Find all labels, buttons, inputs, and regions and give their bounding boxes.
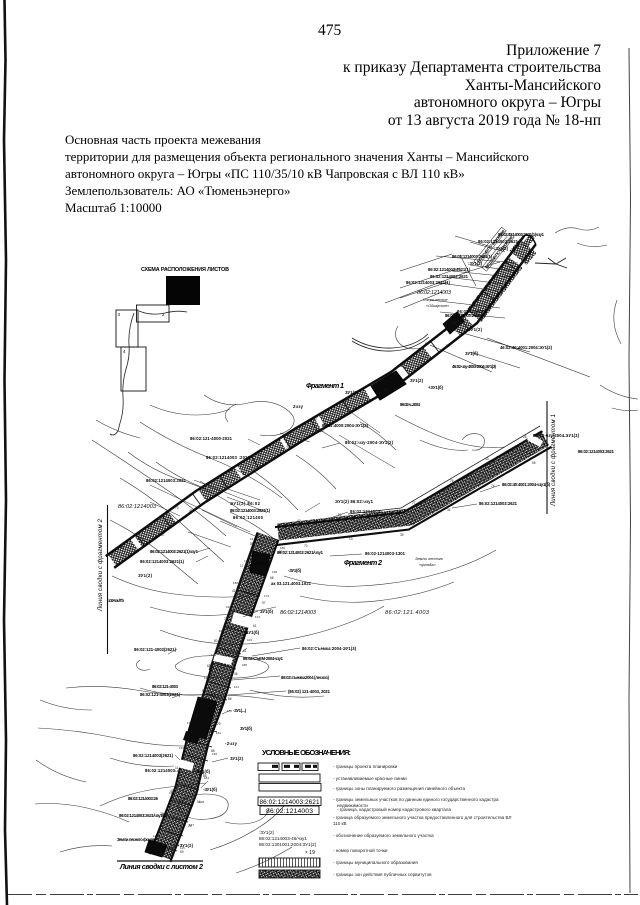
svg-text:ЗУ1(б): ЗУ1(б): [260, 609, 274, 614]
svg-text:СХЕМА РАСПОЛОЖЕНИЯ ЛИСТОВ: СХЕМА РАСПОЛОЖЕНИЯ ЛИСТОВ: [141, 267, 229, 273]
svg-text:46:02:40:4001:2004:ЭУ1(2): 46:02:40:4001:2004:ЭУ1(2): [500, 345, 553, 350]
svg-text:86:02:1214003 :2021: 86:02:1214003 :2021: [206, 455, 251, 460]
svg-text:3: 3: [118, 312, 121, 317]
svg-text:-ЗУ1(б): -ЗУ1(б): [203, 787, 218, 792]
svg-text:95: 95: [128, 553, 132, 557]
svg-text:86:02:121-4000-2021: 86:02:121-4000-2021: [190, 436, 233, 441]
svg-text:65: 65: [207, 664, 211, 668]
svg-text:«Ойкарское»: «Ойкарское»: [426, 304, 449, 308]
svg-text:18: 18: [202, 486, 206, 490]
svg-text:«фонда»: «фонда»: [419, 562, 436, 567]
svg-text:38: 38: [345, 398, 349, 402]
svg-text:43: 43: [297, 519, 301, 523]
svg-text:ЗУ1(б): ЗУ1(б): [240, 726, 253, 731]
svg-text:56: 56: [120, 546, 124, 550]
svg-text:17: 17: [240, 564, 244, 568]
svg-text:50: 50: [148, 525, 152, 529]
svg-text:21: 21: [255, 467, 259, 471]
svg-text:15: 15: [384, 388, 388, 392]
svg-text:38: 38: [399, 364, 403, 368]
svg-text:97: 97: [262, 601, 266, 605]
svg-text:25: 25: [446, 344, 450, 348]
svg-text:61: 61: [253, 624, 257, 628]
svg-text:- устанавливаемые красные лини: - устанавливаемые красные линии: [333, 776, 407, 781]
svg-text:28: 28: [523, 435, 527, 439]
svg-text:134: 134: [179, 746, 184, 750]
svg-text:77: 77: [412, 501, 416, 505]
svg-text:172: 172: [227, 709, 232, 713]
svg-text:× 19: × 19: [305, 850, 315, 856]
svg-text:160: 160: [219, 629, 224, 633]
svg-text:ЗУ1(2): ЗУ1(2): [230, 756, 244, 761]
svg-text:86:02:чзу-2004-ЭУ1(2): 86:02:чзу-2004-ЭУ1(2): [345, 440, 394, 445]
svg-text:86:02:40:4001:2004-чзу1(б): 86:02:40:4001:2004-чзу1(б): [502, 482, 551, 487]
svg-text:80: 80: [214, 639, 218, 643]
svg-text:ЗУ1(б): ЗУ1(б): [465, 351, 479, 356]
svg-text:Земли лесного: Земли лесного: [415, 556, 444, 561]
svg-text:ЗУ1(2): ЗУ1(2): [468, 327, 483, 332]
svg-text:58: 58: [194, 714, 198, 718]
svg-text:68: 68: [270, 576, 274, 580]
svg-text:110 кВ: 110 кВ: [333, 821, 347, 826]
svg-text:86:02:1214003(2621): 86:02:1214003(2621): [133, 753, 174, 758]
svg-text:86:02:1214003: 86:02:1214003: [417, 290, 452, 296]
svg-text:55: 55: [250, 542, 254, 546]
svg-text:147: 147: [250, 537, 255, 541]
svg-text:93: 93: [515, 246, 519, 250]
svg-text:ЗУ1(2): ЗУ1(2): [410, 378, 424, 383]
svg-text:ЗУ1(2): ЗУ1(2): [138, 573, 153, 578]
svg-text::ЗУ1(2): :ЗУ1(2): [259, 830, 275, 835]
svg-text:138: 138: [272, 570, 277, 574]
svg-text:86:02:4000:2004-ЭУ1(2): 86:02:4000:2004-ЭУ1(2): [322, 423, 369, 428]
svg-text:Линия сводки с фрагментом 2: Линия сводки с фрагментом 2: [98, 518, 104, 612]
svg-text:174: 174: [244, 559, 249, 563]
svg-text:69: 69: [180, 850, 184, 854]
svg-text:86:02:СЪЕМ-2004-чзу1: 86:02:СЪЕМ-2004-чзу1: [243, 656, 284, 661]
svg-text:86:02:1214003:2621(1): 86:02:1214003:2621(1): [230, 508, 271, 513]
svg-text:34: 34: [447, 508, 451, 512]
svg-text:86: 86: [228, 697, 232, 701]
svg-text:149: 149: [175, 769, 180, 773]
svg-text:32: 32: [185, 739, 189, 743]
svg-text:Фрагмент 1: Фрагмент 1: [306, 381, 344, 390]
svg-text:86:02:121-4003(2021): 86:02:121-4003(2021): [140, 692, 181, 697]
svg-text:86:02:121-4003: 86:02:121-4003: [152, 684, 179, 689]
svg-text:86:02:1214003:2621/чзу1: 86:02:1214003:2621/чзу1: [277, 550, 324, 555]
svg-text:50: 50: [320, 429, 324, 433]
svg-text:86:02:1214003:2621: 86:02:1214003:2621: [578, 449, 615, 454]
svg-text:86:02:Съемка:2004-ЭУ1(3): 86:02:Съемка:2004-ЭУ1(3): [302, 646, 357, 651]
svg-text:17: 17: [374, 382, 378, 386]
svg-text:-ЗУ1(б): -ЗУ1(б): [288, 568, 302, 573]
svg-text:- границы зоны планируемого ра: - границы зоны планируемого размещения л…: [333, 785, 466, 791]
svg-text:166: 166: [204, 676, 209, 680]
svg-text:86:02:1214003:2021: 86:02:1214003:2021: [146, 478, 187, 483]
svg-text:53: 53: [417, 365, 421, 369]
svg-text:зЭУчзч/Тb: зЭУчзч/Тb: [108, 598, 124, 603]
svg-text:УСЛОВНЫЕ ОБОЗНАЧЕНИЯ:: УСЛОВНЫЕ ОБОЗНАЧЕНИЯ:: [262, 748, 351, 757]
svg-text:129: 129: [211, 653, 216, 657]
svg-text:55: 55: [532, 461, 536, 465]
svg-text:- границы муниципального образ: - границы муниципального образования: [333, 860, 418, 865]
svg-text:4: 4: [123, 349, 126, 354]
svg-text:29: 29: [217, 722, 221, 726]
svg-text:81: 81: [354, 406, 358, 410]
svg-text:22: 22: [494, 275, 498, 279]
svg-text:150: 150: [169, 791, 174, 795]
svg-text:76: 76: [450, 479, 454, 483]
svg-text:48: 48: [502, 285, 506, 289]
svg-text:ЗУ1(б): ЗУ1(б): [197, 769, 211, 774]
svg-text:199: 199: [197, 696, 202, 700]
svg-text:73: 73: [175, 506, 179, 510]
svg-text:103: 103: [247, 638, 252, 642]
svg-text:- обозначение образуемого земе: - обозначение образуемого земельного уча…: [333, 833, 434, 838]
svg-text:86:02-1214003-1301: 86:02-1214003-1301: [365, 551, 406, 556]
svg-text:86:02:1214003: 86:02:1214003: [350, 509, 381, 514]
svg-text:Озеро лесное: Озеро лесное: [423, 298, 448, 302]
svg-text:2У1(б): 2У1(б): [246, 630, 260, 635]
svg-text:(86:02) 121-4003, 2021: (86:02) 121-4003, 2021: [288, 689, 331, 694]
svg-text:ак 03.121.4003.1021: ак 03.121.4003.1021: [271, 581, 312, 586]
svg-text:160: 160: [233, 581, 238, 585]
svg-text:136: 136: [212, 752, 217, 756]
svg-text:86:02:1301001:2004:ЗУ1(2): 86:02:1301001:2004:ЗУ1(2): [259, 842, 317, 847]
svg-text:141: 141: [234, 685, 239, 689]
svg-text:86:02:1214003:2621(1): 86:02:1214003:2621(1): [445, 313, 486, 318]
svg-text:- границы земельных участко: - границы земельных участков по данным е…: [333, 797, 499, 802]
svg-text:34: 34: [229, 469, 233, 473]
svg-text:-2чзу: -2чзу: [225, 741, 238, 746]
svg-text:181: 181: [216, 731, 221, 735]
svg-text:ЗУ1(2): ЗУ1(2): [345, 390, 359, 395]
svg-text:86:02:1214003:2621(1)чзу1: 86:02:1214003:2621(1)чзу1: [150, 549, 199, 554]
svg-text:73: 73: [224, 617, 228, 621]
svg-text:67: 67: [478, 319, 482, 323]
svg-text:Земли лесного фонда: Земли лесного фонда: [117, 837, 156, 842]
svg-text:63: 63: [202, 689, 206, 693]
svg-text:Линия сводки с листом 2: Линия сводки с листом 2: [119, 862, 203, 871]
svg-text:86:02-чзу-2004.ЭУ1(3): 86:02-чзу-2004.ЭУ1(3): [533, 433, 580, 438]
svg-text:86:02:1214003:2621/чзу1(2): 86:02:1214003:2621/чзу1(2): [119, 813, 168, 818]
svg-text:86:02:1214003-46/чзу1: 86:02:1214003-46/чзу1: [259, 836, 307, 841]
svg-text:ЭУ1(2) 86:02: ЭУ1(2) 86:02: [230, 501, 261, 506]
svg-text:36: 36: [234, 672, 238, 676]
svg-text:86:02:1214003:2621(1): 86:02:1214003:2621(1): [140, 559, 185, 564]
svg-text:173: 173: [264, 594, 269, 598]
svg-text:86:02:1214003:2621(1): 86:02:1214003:2621(1): [428, 267, 471, 272]
svg-text:- номер поворотной точки: - номер поворотной точки: [333, 847, 388, 853]
svg-text:181: 181: [204, 776, 209, 780]
svg-text:99: 99: [523, 257, 527, 261]
svg-text:Фрагмент 2: Фрагмент 2: [344, 558, 382, 567]
svg-text:33: 33: [258, 452, 262, 456]
svg-text:46:02-чзу-4003-2004-ЭУ1(3): 46:02-чзу-4003-2004-ЭУ1(3): [452, 364, 497, 369]
svg-text:+ЗУ1(2): +ЗУ1(2): [177, 843, 194, 848]
svg-text:47: 47: [314, 417, 318, 421]
svg-text:86:02:121400: 86:02:121400: [233, 515, 264, 520]
svg-text:67: 67: [161, 533, 165, 537]
svg-text:86:02:1214003: 86:02:1214003: [145, 768, 176, 773]
svg-text:43: 43: [485, 457, 489, 461]
svg-text:39: 39: [400, 533, 404, 537]
svg-text:175: 175: [187, 721, 192, 725]
svg-text:63: 63: [452, 321, 456, 325]
svg-text:86:02:съемка2004 (лесхоз): 86:02:съемка2004 (лесхоз): [281, 675, 330, 680]
svg-text:70: 70: [304, 544, 308, 548]
svg-text:49: 49: [189, 509, 193, 513]
svg-text:13: 13: [349, 537, 353, 541]
svg-text:64: 64: [425, 342, 429, 346]
svg-text:- границы зон действия публичн: - границы зон действия публичных сервиту…: [333, 871, 432, 877]
svg-text:74: 74: [475, 299, 479, 303]
svg-text:86:02:1214003: 86:02:1214003: [266, 808, 313, 815]
svg-text:86:02:121.4003: 86:02:121.4003: [385, 610, 430, 616]
svg-text:86:02-ч..2004: 86:02-ч..2004: [400, 402, 421, 407]
svg-text:137: 137: [189, 823, 194, 827]
svg-text:108: 108: [199, 800, 204, 804]
svg-text:ЭУ1(2) 86:02:чзу1: ЭУ1(2) 86:02:чзу1: [335, 499, 374, 504]
svg-text:86:02:1214003: 86:02:1214003: [118, 504, 157, 510]
svg-text:86:02:1214003:26: 86:02:1214003:26: [128, 796, 159, 801]
svg-text:- граница образуемого земельно: - граница образуемого земельного участка…: [333, 815, 511, 820]
svg-text:Линия сводки с фрагментом 1: Линия сводки с фрагментом 1: [551, 414, 557, 507]
svg-text:ЗУ1(2): ЗУ1(2): [255, 561, 268, 566]
svg-text:185: 185: [242, 663, 247, 667]
svg-text:- граница, кадастровый номер к: - граница, кадастровый номер кадастровог…: [337, 806, 451, 812]
svg-text:-ЗУ1(...): -ЗУ1(...): [233, 708, 247, 713]
svg-text:174: 174: [255, 615, 260, 619]
svg-text:86:02:1214003:2621(1): 86:02:1214003:2621(1): [406, 280, 451, 285]
svg-text:86:02:1214003:2621: 86:02:1214003:2621: [430, 274, 469, 279]
svg-text:86:02:121-4003(2621): 86:02:121-4003(2621): [134, 647, 177, 652]
svg-text:73: 73: [286, 446, 290, 450]
svg-text:2чзу: 2чзу: [293, 404, 304, 409]
svg-text:+ЗУ1(б): +ЗУ1(б): [428, 385, 444, 390]
svg-text:41: 41: [232, 589, 236, 593]
svg-text:191: 191: [226, 605, 231, 609]
svg-text:86:02:1214003:2621: 86:02:1214003:2621: [479, 501, 518, 506]
svg-text:- границы проекта планировки: - границы проекта планировки: [333, 764, 398, 769]
svg-text:86:02:1214003:2621: 86:02:1214003:2621: [260, 799, 320, 806]
svg-text:86:02:1214003: 86:02:1214003: [280, 610, 317, 616]
